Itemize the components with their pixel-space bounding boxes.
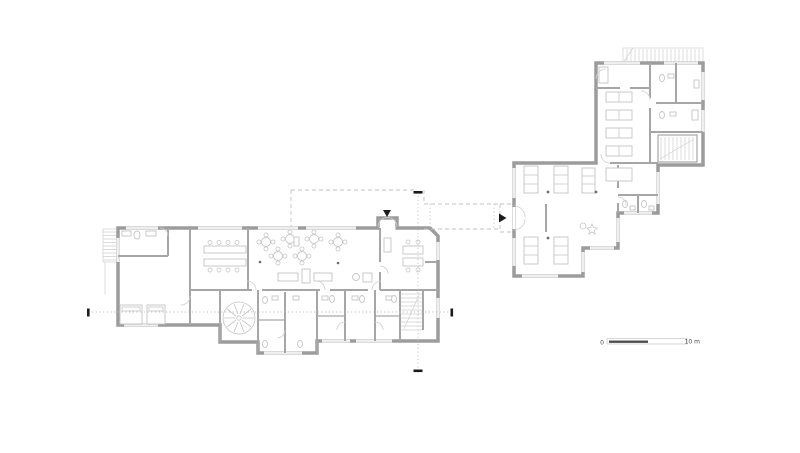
scale-zero-label: 0 [600, 340, 604, 347]
floor-plan-sheet: 0 10 m [0, 0, 800, 453]
scale-bar-fill [609, 341, 648, 343]
exterior-stair-left-icon [103, 229, 118, 294]
exterior-stair-top-icon [623, 48, 703, 63]
section-tick-left [87, 309, 90, 317]
floor-plan-canvas: 0 10 m [0, 0, 800, 453]
scale-length-label: 10 m [685, 339, 701, 346]
section-tick-right [451, 309, 454, 317]
scale-bar: 0 10 m [600, 339, 700, 347]
entry-arrow-down-icon [383, 210, 391, 217]
left-building [103, 218, 438, 354]
canopy-dashed-line [291, 190, 424, 227]
right-building [514, 48, 703, 276]
entry-arrow-right-icon [499, 214, 507, 223]
section-tick-bottom [414, 370, 423, 373]
section-tick-top [414, 191, 423, 194]
